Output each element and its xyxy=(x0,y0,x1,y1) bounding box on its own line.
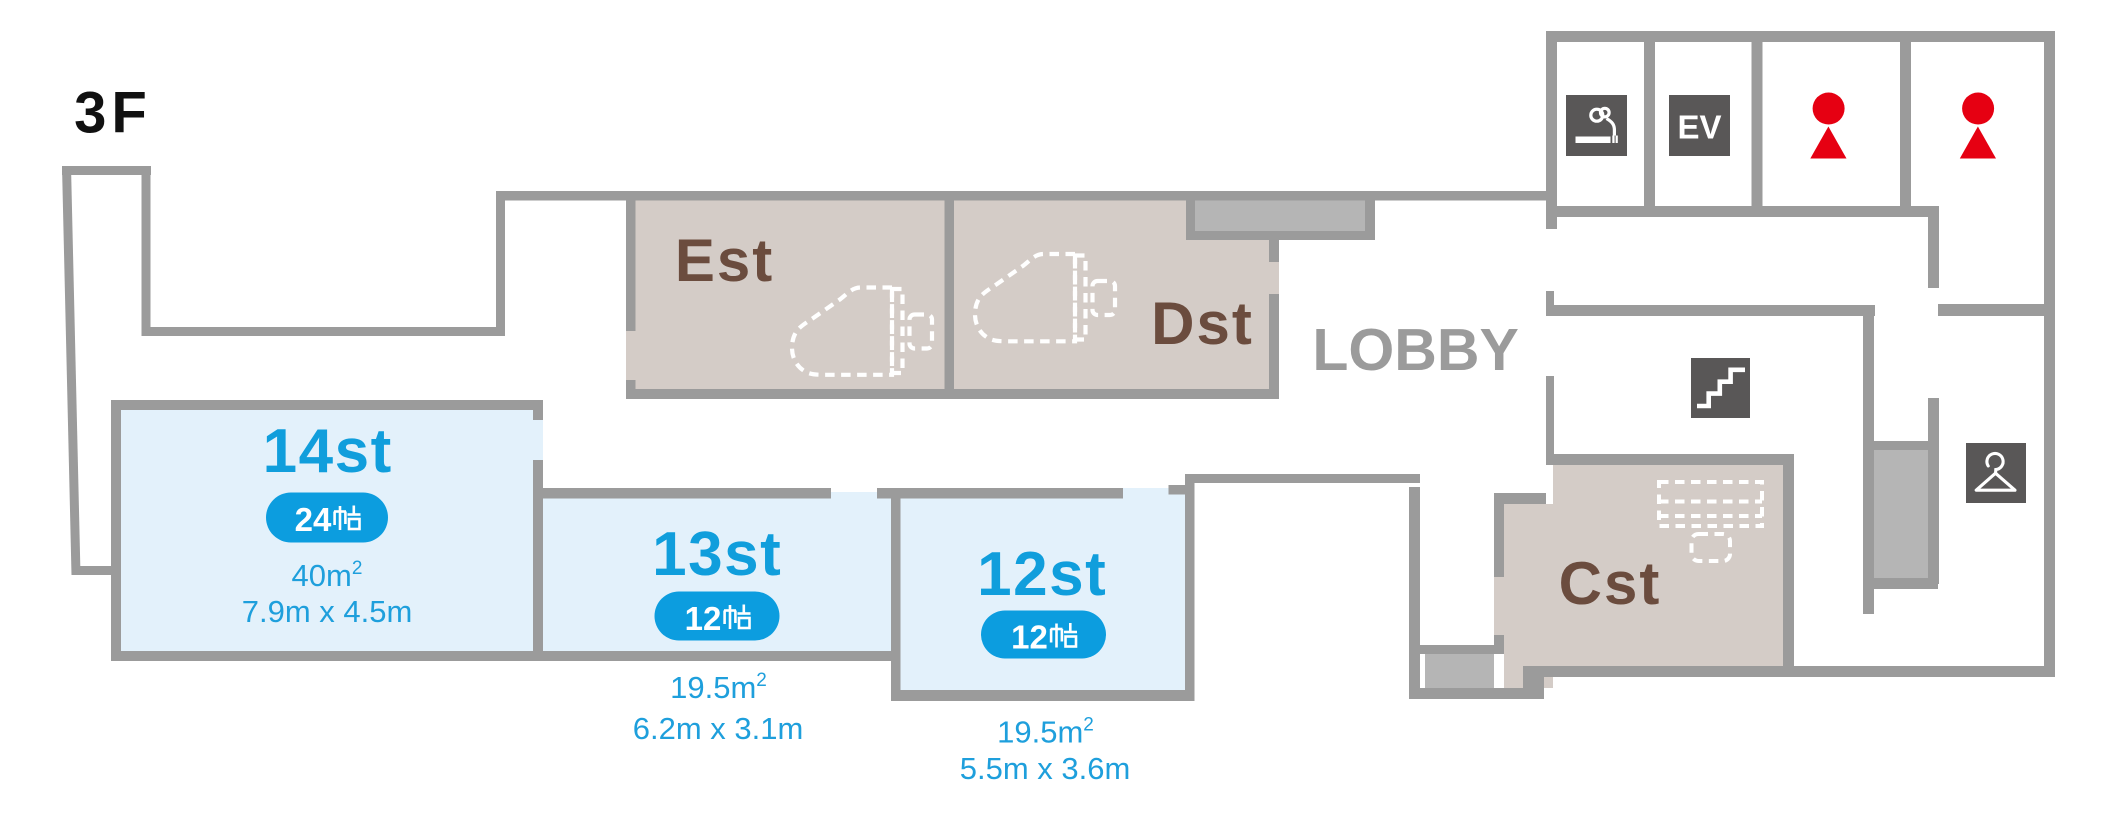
svg-text:12st: 12st xyxy=(977,540,1107,609)
svg-text:14st: 14st xyxy=(263,417,393,486)
svg-text:24: 24 xyxy=(295,501,332,538)
svg-text:12: 12 xyxy=(685,600,722,637)
svg-text:Cst: Cst xyxy=(1559,550,1662,617)
svg-text:LOBBY: LOBBY xyxy=(1312,317,1519,383)
svg-text:12: 12 xyxy=(1011,619,1048,656)
svg-text:Dst: Dst xyxy=(1151,290,1254,357)
svg-text:3F: 3F xyxy=(74,81,152,146)
svg-text:6.2m x 3.1m: 6.2m x 3.1m xyxy=(633,711,804,746)
svg-text:19.5m2: 19.5m2 xyxy=(997,715,1094,750)
svg-text:40m2: 40m2 xyxy=(292,558,363,593)
svg-text:EV: EV xyxy=(1677,109,1721,146)
svg-text:5.5m x 3.6m: 5.5m x 3.6m xyxy=(960,751,1131,786)
svg-text:7.9m x 4.5m: 7.9m x 4.5m xyxy=(242,594,413,629)
svg-text:Est: Est xyxy=(675,227,774,294)
svg-text:13st: 13st xyxy=(652,520,782,589)
svg-text:19.5m2: 19.5m2 xyxy=(670,670,767,705)
